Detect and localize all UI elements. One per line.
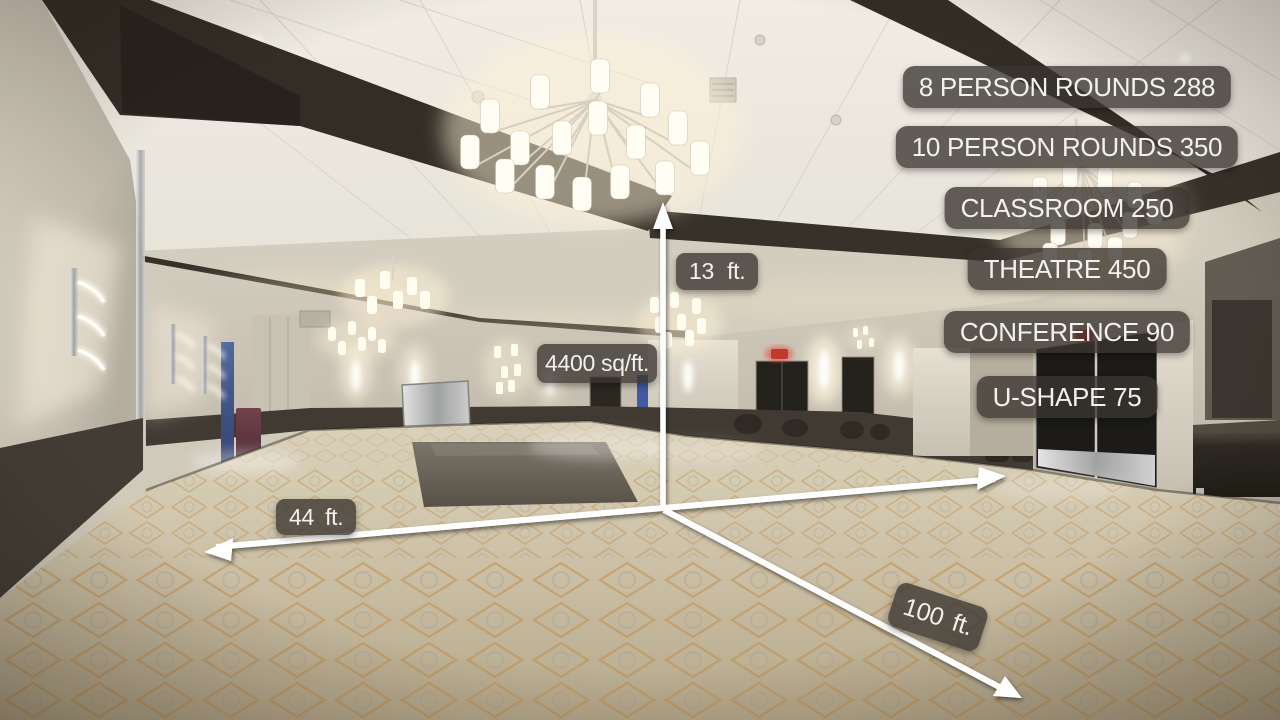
capacity-badge-conference: CONFERENCE 90 (944, 311, 1190, 353)
video-frame: 8 PERSON ROUNDS 288 10 PERSON ROUNDS 350… (0, 0, 1280, 720)
capacity-badge-10-person-rounds: 10 PERSON ROUNDS 350 (896, 126, 1238, 168)
area-dimension-badge: 4400 sq/ft. (537, 344, 657, 383)
width-dimension-badge: 44 ft. (276, 499, 356, 535)
capacity-badge-8-person-rounds: 8 PERSON ROUNDS 288 (903, 66, 1231, 108)
capacity-badge-classroom: CLASSROOM 250 (945, 187, 1190, 229)
height-dimension-badge: 13 ft. (676, 253, 758, 290)
capacity-badge-u-shape: U-SHAPE 75 (977, 376, 1158, 418)
capacity-badge-theatre: THEATRE 450 (968, 248, 1167, 290)
